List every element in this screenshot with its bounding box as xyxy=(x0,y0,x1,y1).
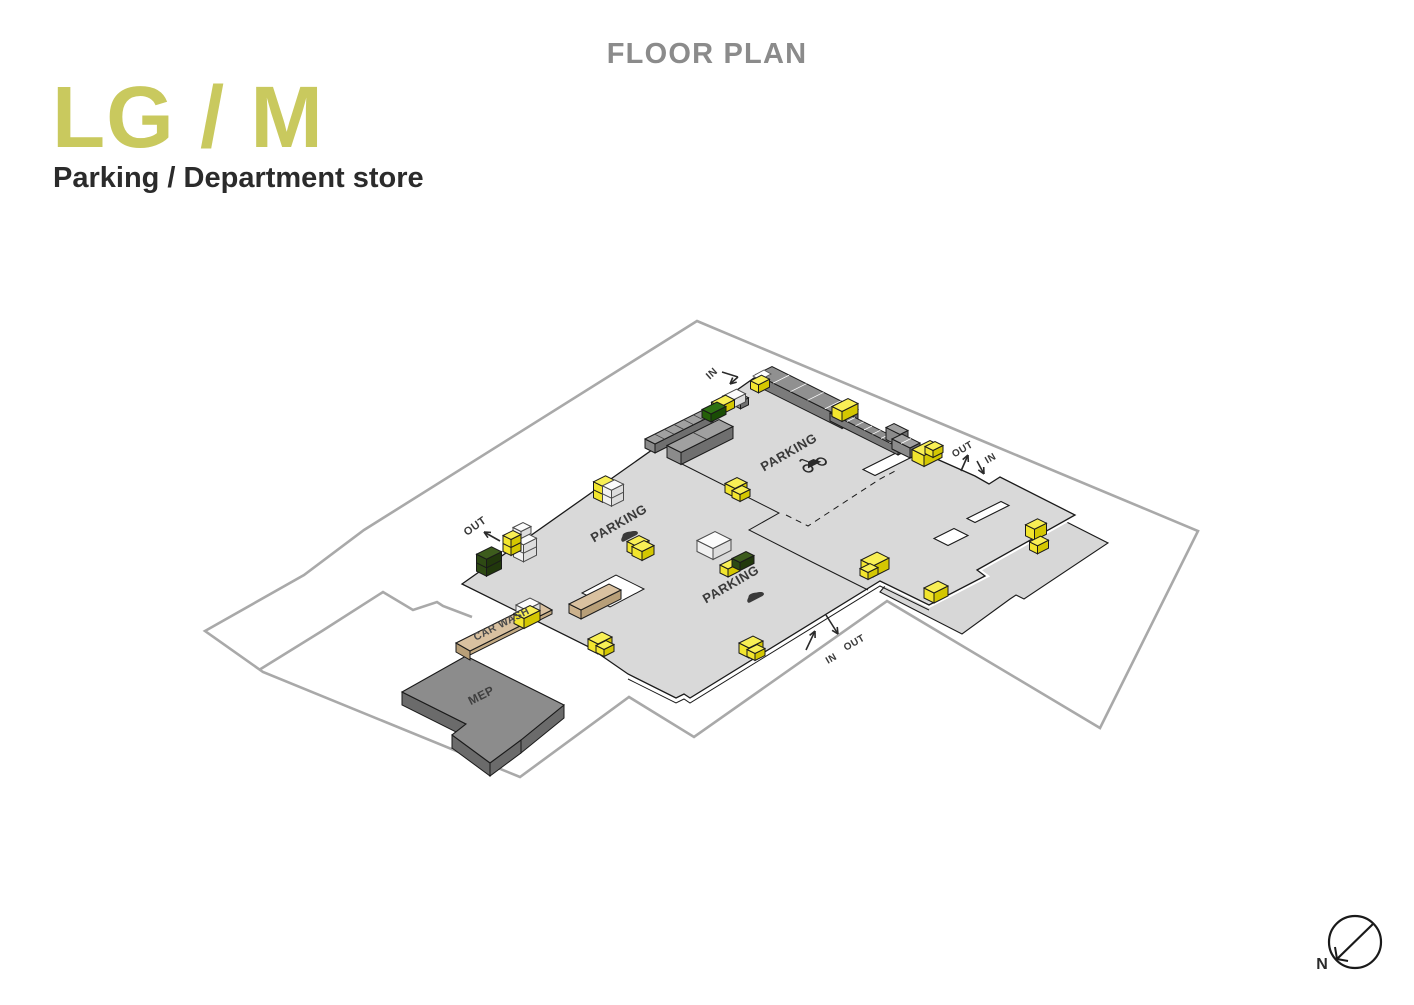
svg-text:IN: IN xyxy=(824,652,839,667)
svg-text:IN: IN xyxy=(983,451,998,466)
svg-text:IN: IN xyxy=(704,365,721,382)
svg-text:OUT: OUT xyxy=(462,515,489,539)
svg-text:N: N xyxy=(1316,956,1328,973)
svg-text:OUT: OUT xyxy=(950,439,975,460)
svg-text:OUT: OUT xyxy=(842,633,867,654)
